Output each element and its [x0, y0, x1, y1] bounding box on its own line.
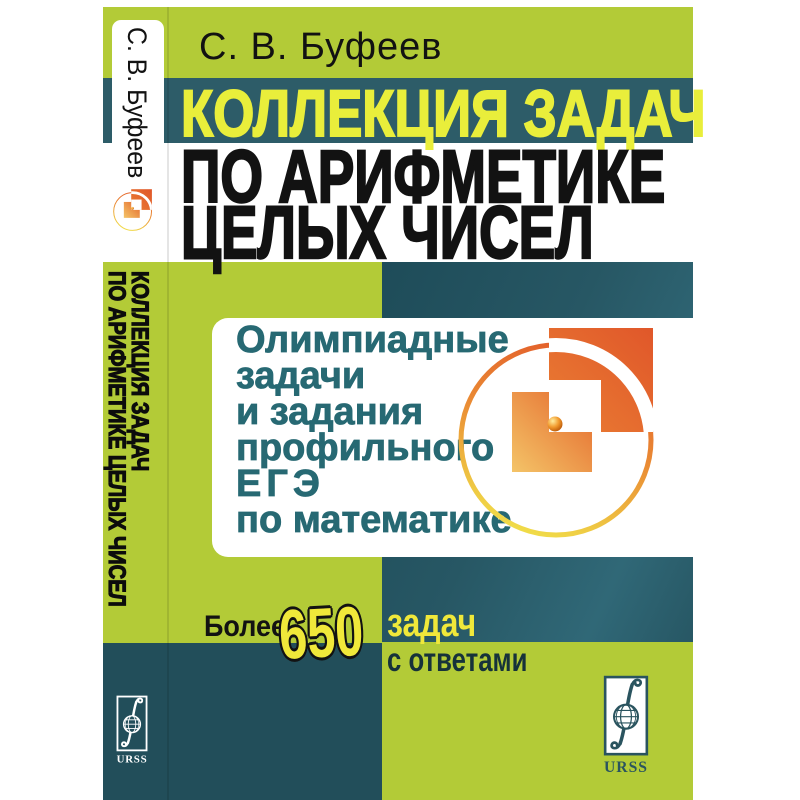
spine-author-name: С. В. Буфеев: [122, 27, 152, 178]
spine-fold-line: [167, 7, 169, 800]
spine-title-line-1: КОЛЛЕКЦИЯ ЗАДАЧ: [128, 271, 151, 607]
book-cover-photo: URSS С. В. Буфеев КОЛЛЕКЦИЯ ЗАДАЧ ПО АРИ…: [0, 0, 800, 800]
author-name: С. В. Буфеев: [199, 24, 442, 70]
badge-count: 650: [277, 594, 397, 670]
main-title-line-3-text: ЦЕЛЫХ ЧИСЕЛ: [181, 196, 594, 270]
spine-title-line-2: ПО АРИФМЕТИКЕ ЦЕЛЫХ ЧИСЕЛ: [105, 271, 128, 607]
publisher-logo-mark-icon: [448, 327, 668, 548]
spine-logo-mark-icon: [111, 189, 155, 233]
badge-suffix: с ответами: [387, 641, 567, 679]
urss-emblem-front-icon: [603, 675, 649, 775]
spine-title: КОЛЛЕКЦИЯ ЗАДАЧ ПО АРИФМЕТИКЕ ЦЕЛЫХ ЧИСЕ…: [105, 271, 151, 607]
urss-emblem-spine-icon: [116, 695, 148, 765]
main-title-line-3: ЦЕЛЫХ ЧИСЕЛ: [181, 196, 739, 270]
badge-word: задач: [387, 601, 498, 646]
